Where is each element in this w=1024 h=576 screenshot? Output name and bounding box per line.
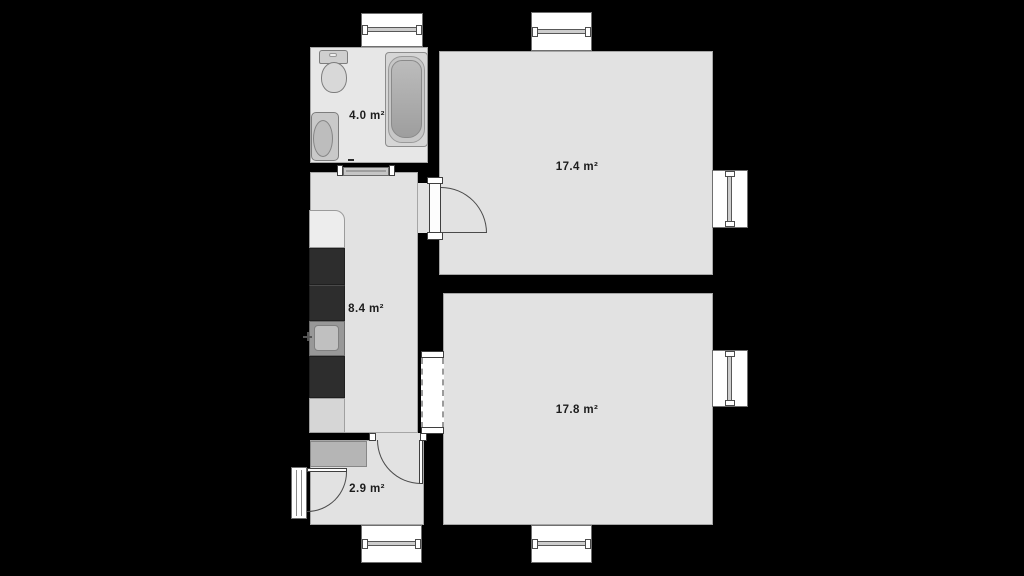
sliding-door-bathroom — [343, 167, 389, 176]
opening-jamb — [421, 427, 444, 434]
window-jamb — [416, 25, 422, 35]
door-room-upper-leaf — [429, 183, 441, 233]
window-jamb — [725, 221, 735, 227]
door-jamb — [369, 433, 376, 441]
kitchen-sink-basin — [314, 325, 339, 351]
window-jamb — [415, 539, 421, 549]
door-jamb — [427, 232, 443, 240]
window-jamb — [725, 400, 735, 406]
kitchen-counter-segment — [309, 210, 345, 248]
toilet-flush-button — [329, 53, 337, 57]
window-jamb — [585, 539, 591, 549]
kitchen-appliance-dark — [309, 248, 345, 285]
window-jamb — [585, 27, 591, 37]
window-top-room-upper — [531, 12, 592, 51]
room-lower-area-label: 17.8 m² — [556, 404, 598, 416]
window-glazing — [366, 541, 417, 546]
window-glazing — [727, 175, 732, 223]
kitchen-area-label: 8.4 m² — [348, 303, 384, 315]
room-upper-area-label: 17.4 m² — [556, 161, 598, 173]
entry-area-label: 2.9 m² — [349, 483, 385, 495]
window-jamb — [725, 171, 735, 177]
kitchen-sink-unit — [309, 321, 345, 356]
window-jamb — [532, 539, 538, 549]
window-jamb — [362, 539, 368, 549]
bathroom-sink-basin — [313, 120, 333, 157]
door-jamb — [389, 165, 395, 176]
window-bottom-room-lower — [531, 525, 592, 563]
window-top-bathroom — [361, 13, 423, 47]
kitchen-appliance-dark — [309, 285, 345, 321]
window-jamb — [362, 25, 368, 35]
bathtub-basin — [391, 60, 422, 138]
front-door-frame-lines — [296, 470, 302, 516]
toilet-bowl — [321, 62, 347, 93]
window-jamb — [532, 27, 538, 37]
entry-shelf — [310, 441, 367, 467]
floor-plan-canvas: 4.0 m² 17.4 m² 8.4 m² 17.8 m² 2.9 m² — [0, 0, 1024, 576]
window-glazing — [727, 355, 732, 402]
window-glazing — [536, 541, 587, 546]
bathroom-area-label: 4.0 m² — [349, 110, 385, 122]
front-door-frame — [291, 467, 307, 519]
kitchen-appliance-dark — [309, 356, 345, 398]
kitchen-faucet-mark — [307, 332, 309, 341]
window-right-room-upper — [712, 170, 748, 228]
window-bottom-entry — [361, 525, 422, 563]
window-glazing — [536, 29, 587, 34]
window-right-room-lower — [712, 350, 748, 407]
window-jamb — [725, 351, 735, 357]
sliding-door-handle-mark — [348, 159, 354, 161]
dashed-opening-kitchen-room-lower — [421, 358, 444, 428]
window-glazing — [366, 27, 418, 32]
opening-jamb — [421, 351, 444, 358]
kitchen-counter-segment — [309, 398, 345, 433]
